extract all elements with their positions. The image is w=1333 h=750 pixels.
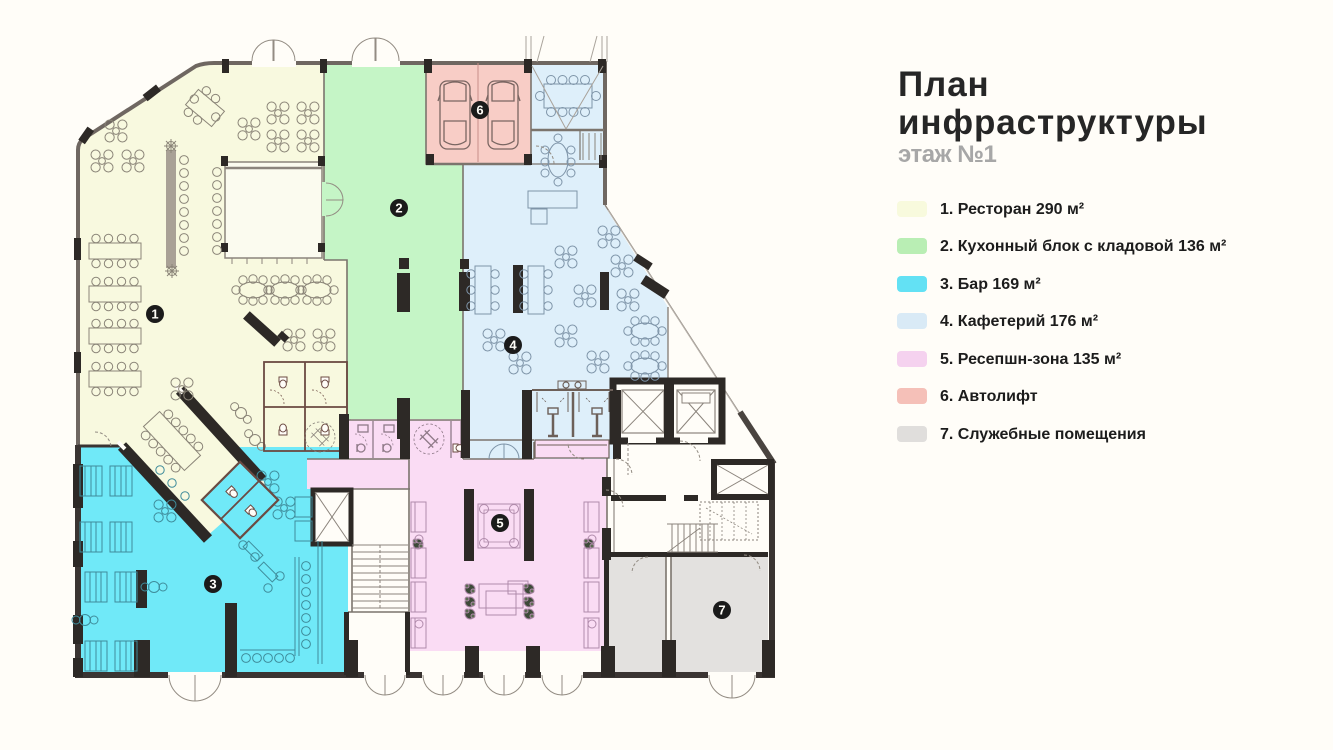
svg-text:4: 4 — [509, 338, 517, 353]
svg-text:1: 1 — [151, 307, 158, 322]
svg-text:3: 3 — [209, 577, 216, 592]
svg-text:5: 5 — [496, 516, 503, 531]
svg-text:7: 7 — [718, 603, 725, 618]
svg-text:2: 2 — [395, 201, 402, 216]
svg-text:6: 6 — [476, 103, 483, 118]
